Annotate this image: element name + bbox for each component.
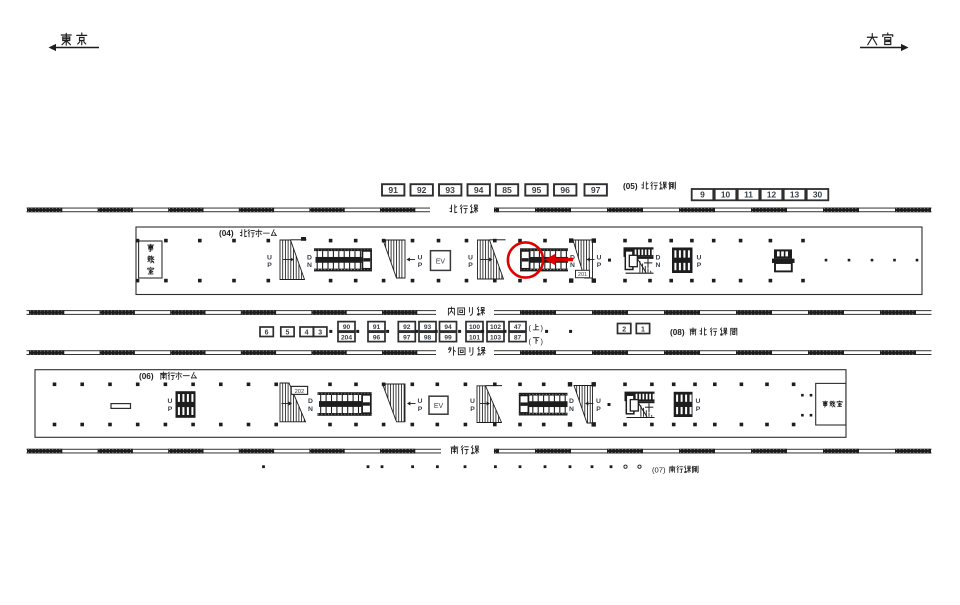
svg-text:2: 2 <box>622 326 626 333</box>
svg-text:U: U <box>468 255 473 262</box>
svg-text:D: D <box>307 255 312 262</box>
svg-text:1: 1 <box>641 326 645 333</box>
svg-text:4: 4 <box>305 330 309 337</box>
svg-text:(05): (05) <box>623 182 638 191</box>
svg-text:N: N <box>656 262 661 269</box>
svg-text:N: N <box>570 262 575 269</box>
svg-text:P: P <box>696 406 701 413</box>
svg-text:U: U <box>597 255 602 262</box>
svg-text:91: 91 <box>388 185 398 195</box>
svg-text:P: P <box>418 406 423 413</box>
svg-text:U: U <box>418 255 423 262</box>
svg-text:13: 13 <box>790 190 800 200</box>
svg-text:EV: EV <box>434 403 444 410</box>
svg-text:94: 94 <box>474 185 484 195</box>
svg-text:N: N <box>307 262 312 269</box>
svg-text:U: U <box>418 398 423 405</box>
svg-text:96: 96 <box>560 185 570 195</box>
svg-text:5: 5 <box>285 330 289 337</box>
svg-text:U: U <box>168 398 173 405</box>
svg-text:U: U <box>596 398 601 405</box>
svg-text:N: N <box>569 406 574 413</box>
svg-text:): ) <box>541 324 543 333</box>
svg-text:U: U <box>697 255 702 262</box>
svg-text:U: U <box>267 255 272 262</box>
svg-text:98: 98 <box>424 335 432 342</box>
svg-text:11: 11 <box>744 190 753 200</box>
svg-text:D: D <box>569 398 574 405</box>
svg-text:(06): (06) <box>139 372 154 381</box>
svg-text:(08): (08) <box>670 328 685 337</box>
svg-text:P: P <box>418 262 423 269</box>
svg-text:99: 99 <box>444 335 452 342</box>
svg-text:85: 85 <box>502 185 512 195</box>
svg-text:202: 202 <box>295 389 305 395</box>
svg-text:92: 92 <box>417 185 427 195</box>
svg-text:95: 95 <box>532 185 542 195</box>
svg-text:9: 9 <box>700 190 705 200</box>
svg-text:204: 204 <box>341 335 352 342</box>
svg-text:U: U <box>470 398 475 405</box>
svg-text:6: 6 <box>265 330 269 337</box>
svg-text:102: 102 <box>490 324 501 331</box>
svg-text:47: 47 <box>514 324 522 331</box>
svg-text:D: D <box>308 398 313 405</box>
svg-text:P: P <box>697 262 702 269</box>
svg-text:P: P <box>596 406 601 413</box>
svg-text:P: P <box>597 262 602 269</box>
svg-text:(04): (04) <box>219 229 234 238</box>
svg-text:87: 87 <box>514 335 522 342</box>
svg-text:12: 12 <box>767 190 777 200</box>
svg-text:90: 90 <box>343 324 351 331</box>
svg-text:93: 93 <box>445 185 455 195</box>
svg-text:103: 103 <box>490 335 501 342</box>
svg-text:U: U <box>696 398 701 405</box>
svg-text:N: N <box>308 406 313 413</box>
svg-text:97: 97 <box>591 185 601 195</box>
svg-text:93: 93 <box>424 324 432 331</box>
svg-text:D: D <box>656 255 661 262</box>
svg-text:91: 91 <box>373 324 381 331</box>
svg-text:92: 92 <box>403 324 411 331</box>
svg-text:P: P <box>168 406 173 413</box>
svg-text:100: 100 <box>469 324 480 331</box>
svg-text:P: P <box>468 262 473 269</box>
svg-text:97: 97 <box>403 335 411 342</box>
svg-text:101: 101 <box>469 335 480 342</box>
svg-text:): ) <box>541 337 543 346</box>
svg-text:10: 10 <box>721 190 731 200</box>
svg-text:30: 30 <box>813 190 823 200</box>
svg-text:201: 201 <box>578 272 587 278</box>
svg-text:(07): (07) <box>652 465 666 474</box>
svg-text:96: 96 <box>373 335 381 342</box>
svg-text:94: 94 <box>444 324 452 331</box>
svg-text:3: 3 <box>318 330 322 337</box>
svg-text:P: P <box>267 262 272 269</box>
svg-text:EV: EV <box>436 259 446 266</box>
svg-text:P: P <box>470 406 475 413</box>
